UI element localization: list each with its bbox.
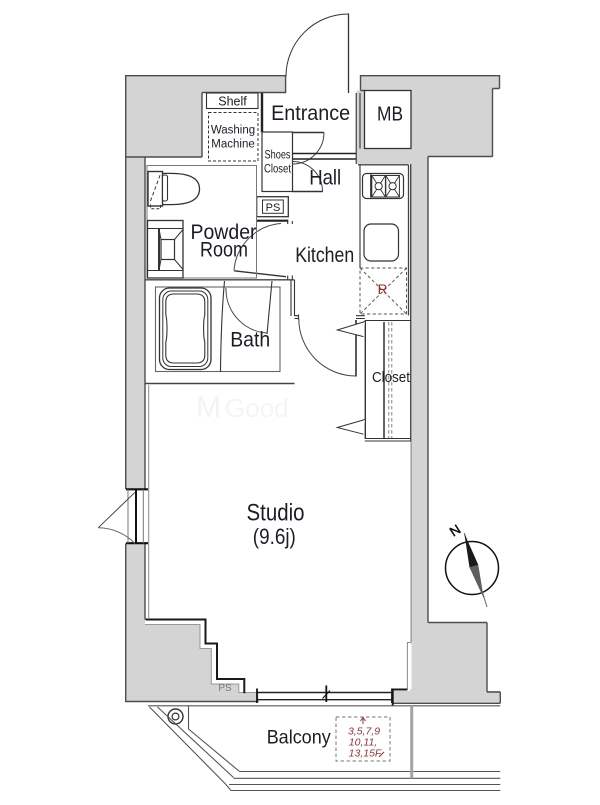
svg-text:Shelf: Shelf [218,95,247,109]
svg-text:Good: Good [225,393,289,423]
svg-text:Bath: Bath [230,329,270,352]
svg-text:Closet: Closet [372,369,411,386]
svg-text:PS: PS [266,202,281,214]
svg-text:13,15F: 13,15F [349,748,382,760]
svg-text:Closet: Closet [264,164,292,176]
svg-text:Balcony: Balcony [267,727,331,749]
svg-text:Entrance: Entrance [271,102,350,125]
svg-text:M: M [196,391,221,424]
svg-text:(9.6j): (9.6j) [253,524,296,549]
svg-text:Kitchen: Kitchen [295,244,354,267]
svg-text:MB: MB [377,104,403,126]
svg-text:PS: PS [218,683,232,694]
svg-text:Room: Room [200,239,248,262]
svg-text:Shoes: Shoes [265,150,291,162]
svg-text:Hall: Hall [309,167,341,190]
svg-text:Washing: Washing [211,125,255,137]
svg-text:Studio: Studio [247,500,305,527]
svg-text:Machine: Machine [211,139,254,151]
svg-text:R: R [378,282,388,297]
